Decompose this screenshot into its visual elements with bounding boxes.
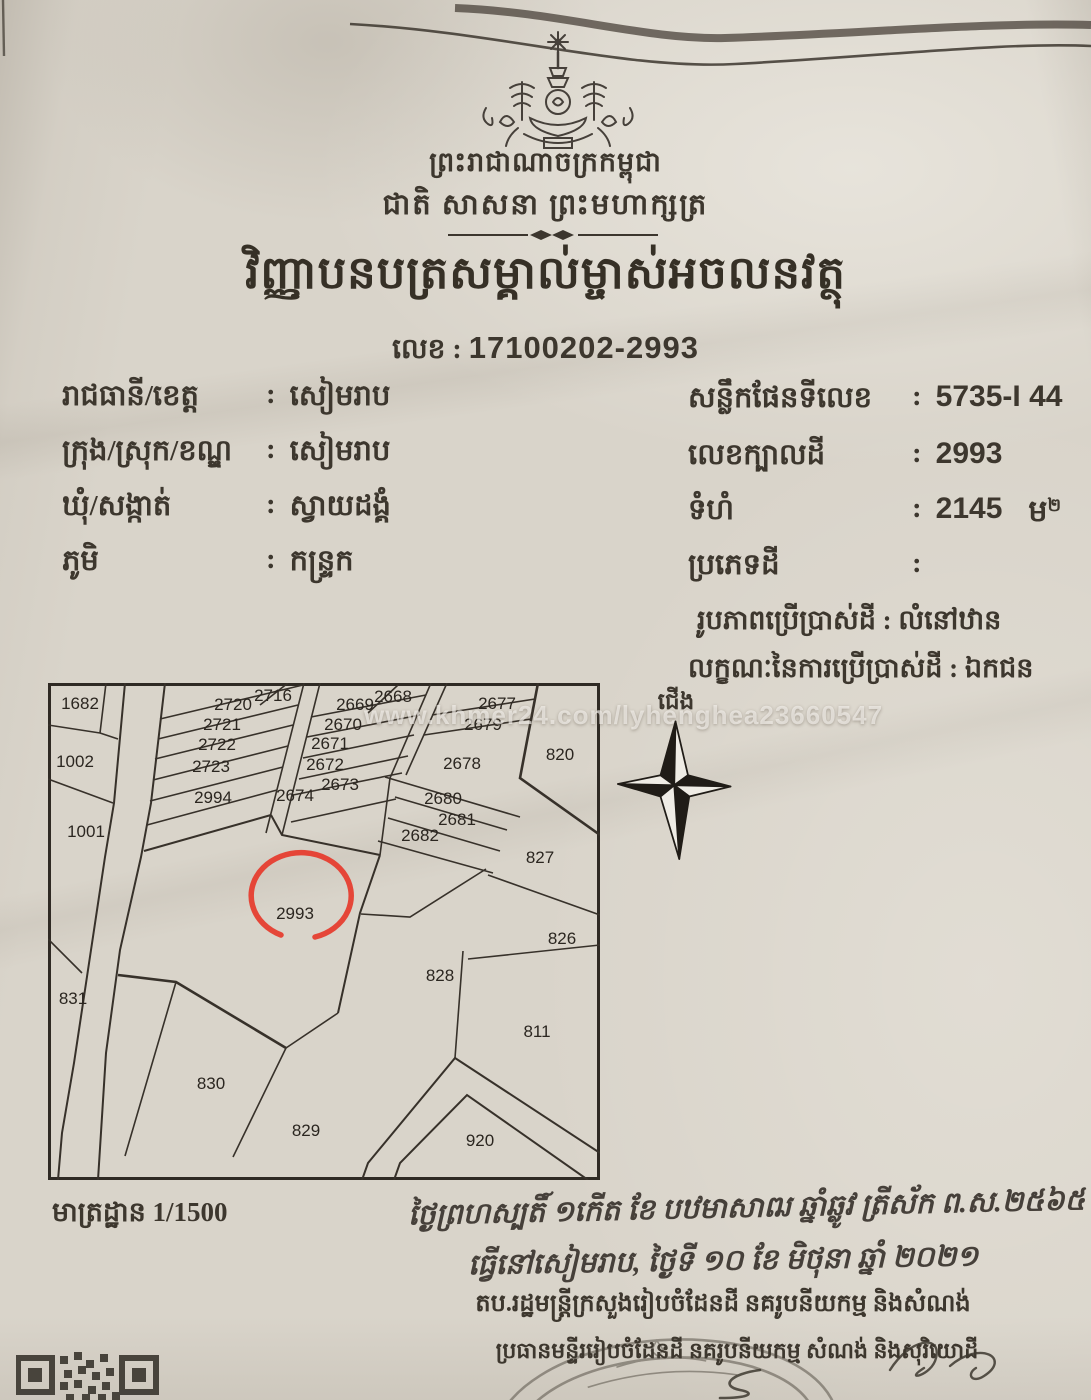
- parcel-label-2721: 2721: [203, 715, 241, 734]
- parcel-label-829: 829: [292, 1121, 320, 1140]
- number-value: 17100202-2993: [469, 330, 699, 365]
- left-curl: [483, 108, 492, 125]
- royal-arms-emblem-icon: [478, 30, 638, 150]
- parcel-label-2674: 2674: [276, 786, 314, 805]
- parcel-label-2720: 2720: [214, 695, 252, 714]
- certificate-number-line: លេខ : 17100202-2993: [0, 330, 1091, 372]
- parcel-label-820: 820: [546, 745, 574, 764]
- lunar-date-line: ថ្ងៃព្រហស្បតិ៍ ១កើត ខែ បឋមាសាឍ ឆ្នាំឆ្លូ…: [408, 1182, 1086, 1239]
- field-use-character: លក្ខណៈនៃការប្រើប្រាស់ដី : ឯកជន: [688, 652, 1033, 691]
- signature: [880, 1330, 1060, 1400]
- right-lion: [602, 116, 616, 126]
- field-commune: ឃុំ/សង្កាត់: ស្វាយដង្គំ: [62, 488, 391, 530]
- certificate-title: វិញ្ញាបនបត្រសម្គាល់ម្ចាស់អចលនវត្ថុ: [0, 244, 1091, 310]
- field-parcel-number: លេខក្បាលដី: 2993: [688, 437, 1002, 479]
- qr-code: [16, 1352, 166, 1400]
- left-parasol: [510, 82, 534, 120]
- parcel-label-1682: 1682: [61, 694, 99, 713]
- field-land-use: រូបភាពប្រើប្រាស់ដី : លំនៅឋាន: [697, 604, 1001, 643]
- parcel-label-826: 826: [548, 929, 576, 948]
- parcel-label-830: 830: [197, 1074, 225, 1093]
- parcel-label-2994: 2994: [194, 788, 232, 807]
- authority-line-1: តប.រដ្ឋមន្ត្រីក្រសួងរៀបចំដែនដី នគរូបនីយក…: [428, 1288, 1018, 1323]
- parcel-label-2682: 2682: [401, 826, 439, 845]
- field-area: ទំហំ: 2145 ម២: [688, 492, 1061, 536]
- parcel-number-labels: 1682100210018312720272127222723299427162…: [56, 686, 576, 1150]
- national-motto: ជាតិ សាសនា ព្រះមហាក្សត្រ: [0, 187, 1091, 229]
- field-district: ក្រុង/ស្រុក/ខណ្ឌ: សៀមរាប: [62, 433, 390, 475]
- parcel-label-2673: 2673: [321, 775, 359, 794]
- field-land-type: ប្រភេទដី:: [688, 547, 936, 589]
- scanned-land-title-document: ព្រះរាជាណាចក្រកម្ពុជា ជាតិ សាសនា ព្រះមហា…: [0, 0, 1091, 1400]
- field-map-sheet: សន្លឹកផែនទីលេខ: 5735-I 44: [688, 380, 1062, 422]
- parcel-label-920: 920: [466, 1131, 494, 1150]
- map-scale: មាត្រដ្ឋាន 1/1500: [52, 1196, 228, 1235]
- parcel-label-2993: 2993: [276, 904, 314, 923]
- signature-stroke-bottom: [690, 1368, 780, 1400]
- parcel-label-2680: 2680: [424, 789, 462, 808]
- parcel-label-827: 827: [526, 848, 554, 867]
- sunburst: [548, 32, 568, 52]
- ornamental-divider: [448, 228, 658, 242]
- parcel-label-2722: 2722: [198, 735, 236, 754]
- right-parasol: [582, 82, 606, 120]
- parcel-label-831: 831: [59, 989, 87, 1008]
- area-unit: ម២: [1028, 492, 1061, 536]
- cadastral-map-svg: 1682100210018312720272127222723299427162…: [48, 683, 600, 1180]
- right-curl: [624, 108, 633, 125]
- parcel-label-2678: 2678: [443, 754, 481, 773]
- compass-rose-icon: [608, 714, 738, 864]
- parcel-label-2723: 2723: [192, 757, 230, 776]
- left-lion: [500, 116, 514, 126]
- parcel-label-2671: 2671: [311, 734, 349, 753]
- issue-date-line: ធ្វើនៅសៀមរាប, ថ្ងៃទី ១០ ខែ មិថុនា ឆ្នាំ …: [468, 1239, 979, 1290]
- parcel-label-2681: 2681: [438, 810, 476, 829]
- number-label: លេខ: [392, 334, 445, 365]
- parcel-label-828: 828: [426, 966, 454, 985]
- parcel-label-1002: 1002: [56, 752, 94, 771]
- parcel-label-811: 811: [523, 1022, 550, 1041]
- parcel-label-2672: 2672: [306, 755, 344, 774]
- parcel-label-2670: 2670: [324, 715, 362, 734]
- parcel-label-2716: 2716: [254, 686, 292, 705]
- kingdom-name: ព្រះរាជាណាចក្រកម្ពុជា: [0, 146, 1091, 185]
- field-village: ភូមិ: កន្ទ្រក: [62, 543, 354, 585]
- highlight-circle-2993: [251, 853, 351, 937]
- parcel-label-1001: 1001: [67, 822, 105, 841]
- field-province: រាជធានី/ខេត្ត: សៀមរាប: [62, 378, 390, 420]
